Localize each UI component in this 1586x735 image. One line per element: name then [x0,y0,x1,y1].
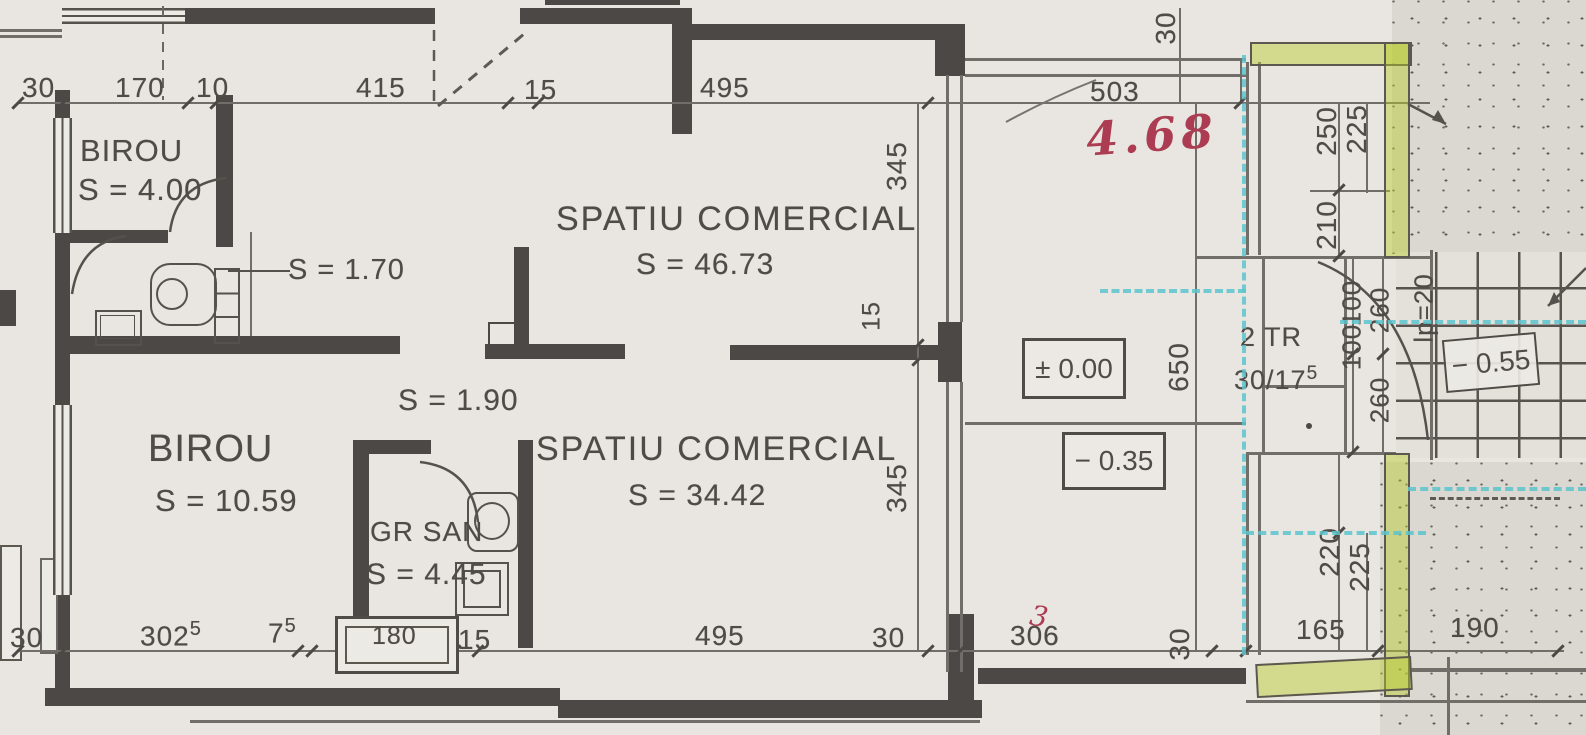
wall [520,8,678,24]
room-label-grsan: GR SAN [370,516,483,548]
neighbour-wall [0,290,16,326]
pencil-stroke [1006,80,1096,122]
wall-bottom-right [978,668,1246,684]
partition-line [946,382,949,672]
dim-label: 345 [881,463,913,513]
level-box-zero: ± 0.00 [1022,338,1126,399]
partition-line [946,75,949,322]
dim-label: 260 [1365,377,1396,423]
highlighted-wall-right-upper [1384,42,1410,258]
dim-label: 190 [1450,612,1500,644]
dim-sup: 5 [190,618,202,640]
wall-grsan [353,440,431,454]
door-arc-wc [72,236,126,294]
cyan-dashed-horizontal [1340,320,1586,324]
area-label-spatiu-top: S = 46.73 [636,248,774,282]
exterior-ground-top-right [1392,0,1586,254]
stair-ratio-label: 30/175 [1234,363,1318,396]
stair-treads-label: 2 TR [1240,322,1302,353]
dim-label: 345 [881,141,913,191]
dim-value: 7 [268,617,285,648]
room-label-birou-top: BIROU [80,133,183,169]
reference-dot [1306,423,1312,429]
window-dim-label: 180 [372,622,417,651]
dim-label: 250 [1311,106,1343,156]
dim-label: 225 [1341,104,1373,154]
dim-label: 15 [524,74,557,106]
dim-label: 415 [356,72,406,104]
dim-line-vertical [1195,103,1197,650]
area-label-birou-main: S = 10.59 [155,483,298,519]
wall-interior [68,230,168,243]
dim-label: 30 [872,622,905,654]
wall-line [1246,700,1586,703]
floor-plan-scan: 30 170 10 415 15 495 503 30 30 3025 75 1… [0,0,1586,735]
partition-line [250,232,252,336]
dim-label: 30 [1164,627,1196,660]
exterior-ground-bottom-right [1380,462,1586,735]
shaft-line [1258,62,1261,255]
cyan-dashed-horizontal [1246,531,1426,535]
shaft-line [1262,256,1265,452]
dim-label: 30 [22,72,55,104]
dim-label: 15 [858,301,887,331]
wall-line [190,720,980,723]
radiator-inner [100,315,135,339]
dim-label: 495 [695,620,745,652]
dim-label: 260 [1365,287,1396,333]
entrance-swing-dashed [438,34,524,106]
handwritten-total-note: 4.68 [1084,103,1219,166]
dim-label: 210 [1311,200,1343,250]
wall [672,8,692,134]
column [488,322,518,348]
stair-landing-label: lp=20 [1409,273,1440,342]
stair-ratio-sup: 5 [1307,363,1319,384]
neighbour-line [0,29,62,32]
partition-line [960,75,963,322]
dim-value: 302 [140,620,190,651]
dim-label: 170 [115,72,165,104]
room-label-birou-main: BIROU [148,428,273,471]
area-label-grsan: S = 4.45 [366,558,487,592]
shaft-line [1246,452,1396,455]
level-box-minus55: − 0.55 [1442,332,1540,393]
dim-label: 15 [458,624,491,656]
dim-label: 10 [196,72,229,104]
dim-line-bottom [18,650,1564,652]
dim-label: 650 [1163,342,1195,392]
wall-interior [730,345,942,360]
room-label-spatiu-bottom: SPATIU COMERCIAL [536,430,897,469]
dim-line-vertical [917,103,919,650]
dim-label: 503 [1090,76,1140,108]
wall-line [965,58,1246,61]
dim-ext-line [1310,190,1390,192]
wall-line [1408,668,1586,672]
wall-grsan [518,440,533,648]
shaft-line [1246,452,1249,655]
wall [185,8,435,24]
level-box-minus35: − 0.35 [1062,432,1166,490]
cyan-dashed-vertical [1242,55,1246,655]
area-label-hall: S = 1.90 [398,384,519,418]
toilet-bowl-icon [156,278,188,310]
window-top-left [62,8,185,24]
dark-dashed-line [1430,497,1560,500]
cyan-dashed-horizontal [1100,289,1246,293]
dim-label: 165 [1296,614,1346,646]
wall [935,24,965,76]
area-label-spatiu-bottom: S = 34.42 [628,479,766,513]
floor-edge-line [965,422,1246,425]
dim-label: 30 [10,622,43,654]
wall-bottom [558,700,982,718]
area-label-wc: S = 1.70 [288,254,405,287]
neighbour-line [0,35,62,38]
area-label-birou-top: S = 4.00 [78,172,202,208]
wall-interior [216,95,233,247]
wall-bottom [45,688,560,706]
dim-label: 100 [1337,324,1368,370]
wall-line [1447,657,1450,735]
dim-label: 3025 [140,618,202,652]
cyan-dashed-horizontal [1408,487,1586,491]
window-left-lower [53,405,72,595]
dim-label: 75 [268,615,297,649]
window-left-upper [53,118,72,233]
room-label-spatiu-top: SPATIU COMERCIAL [556,200,917,239]
dim-label: 30 [1150,11,1182,44]
partition-line [960,382,963,672]
shaft-line [1258,452,1261,655]
dim-sup: 5 [285,615,297,637]
wall-end-post [938,322,962,382]
wall [692,24,942,40]
shaft-line [1246,62,1249,255]
dim-label: 495 [700,72,750,104]
dim-label: 225 [1344,542,1376,592]
cistern [214,268,240,344]
wall [545,0,680,5]
